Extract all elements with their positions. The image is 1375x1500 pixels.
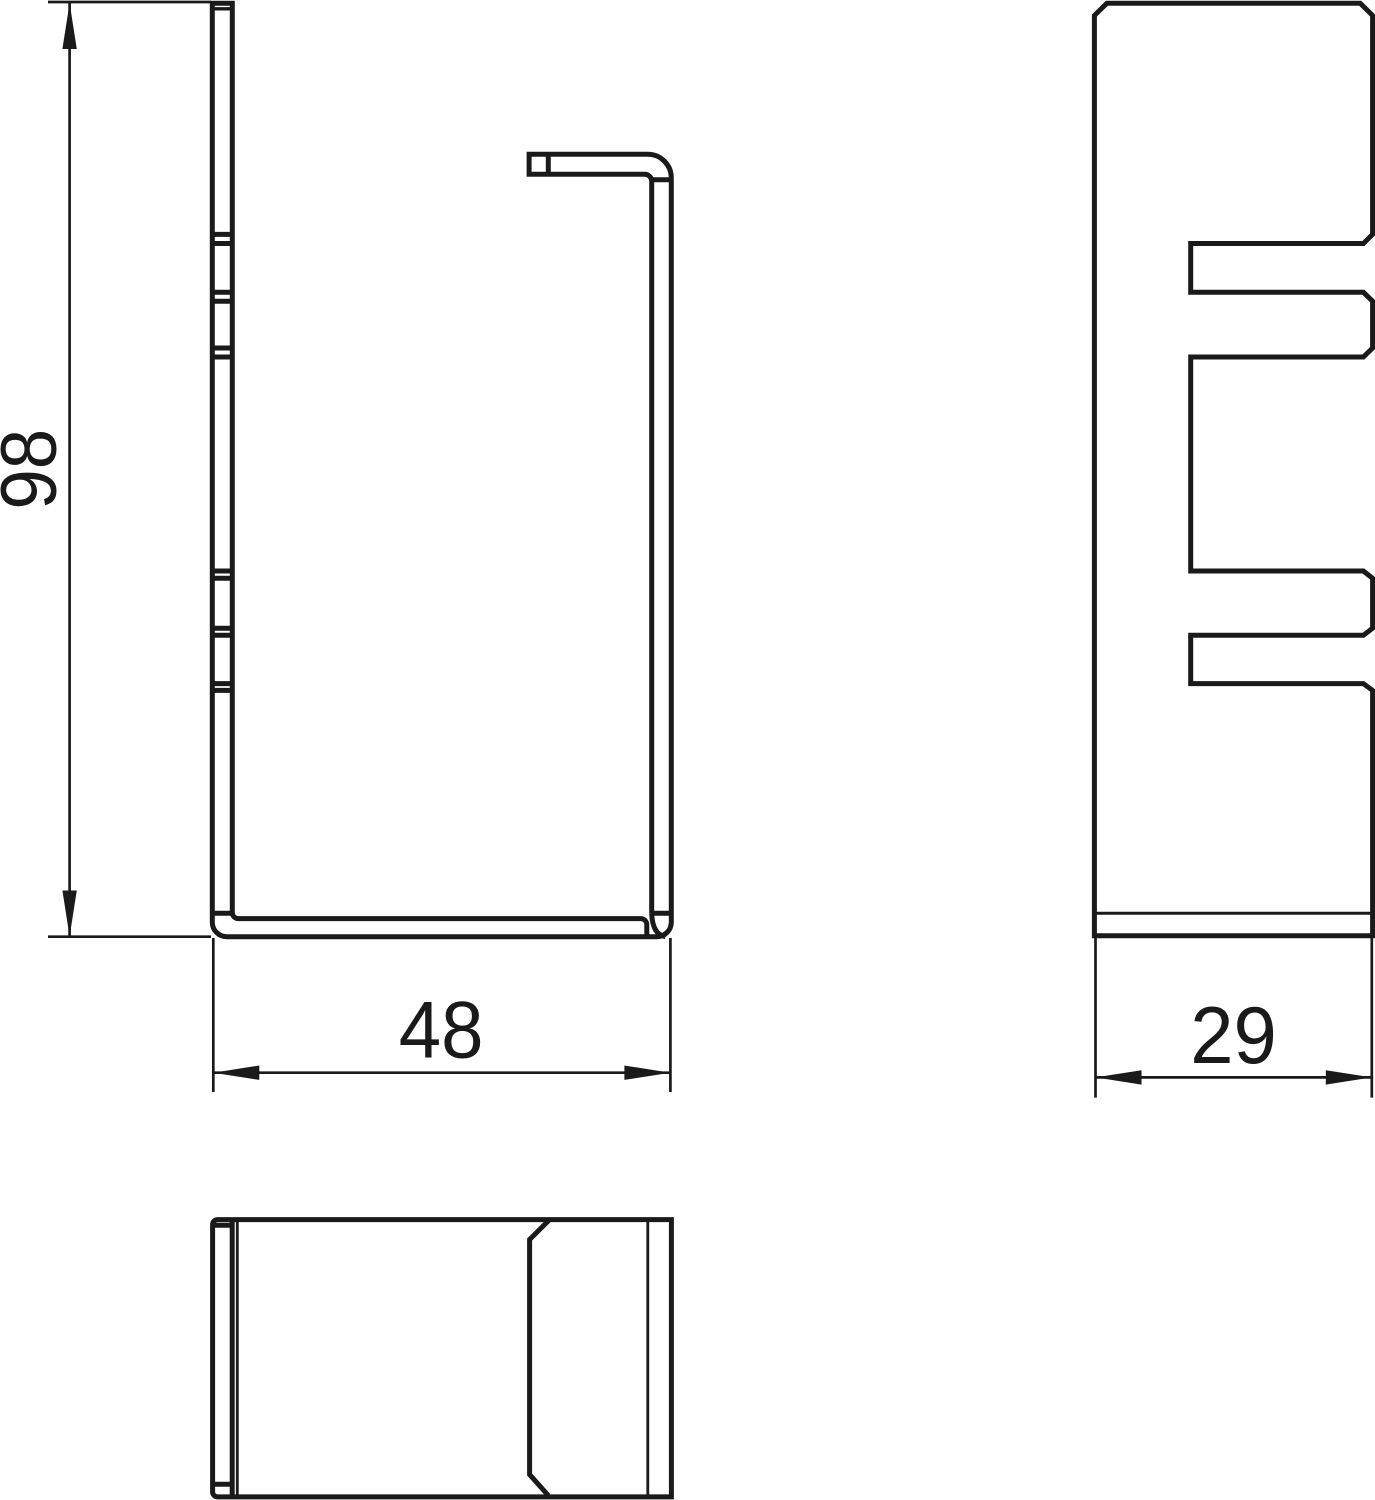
svg-text:98: 98: [0, 429, 73, 510]
svg-text:29: 29: [1190, 990, 1276, 1081]
svg-text:48: 48: [399, 984, 484, 1075]
